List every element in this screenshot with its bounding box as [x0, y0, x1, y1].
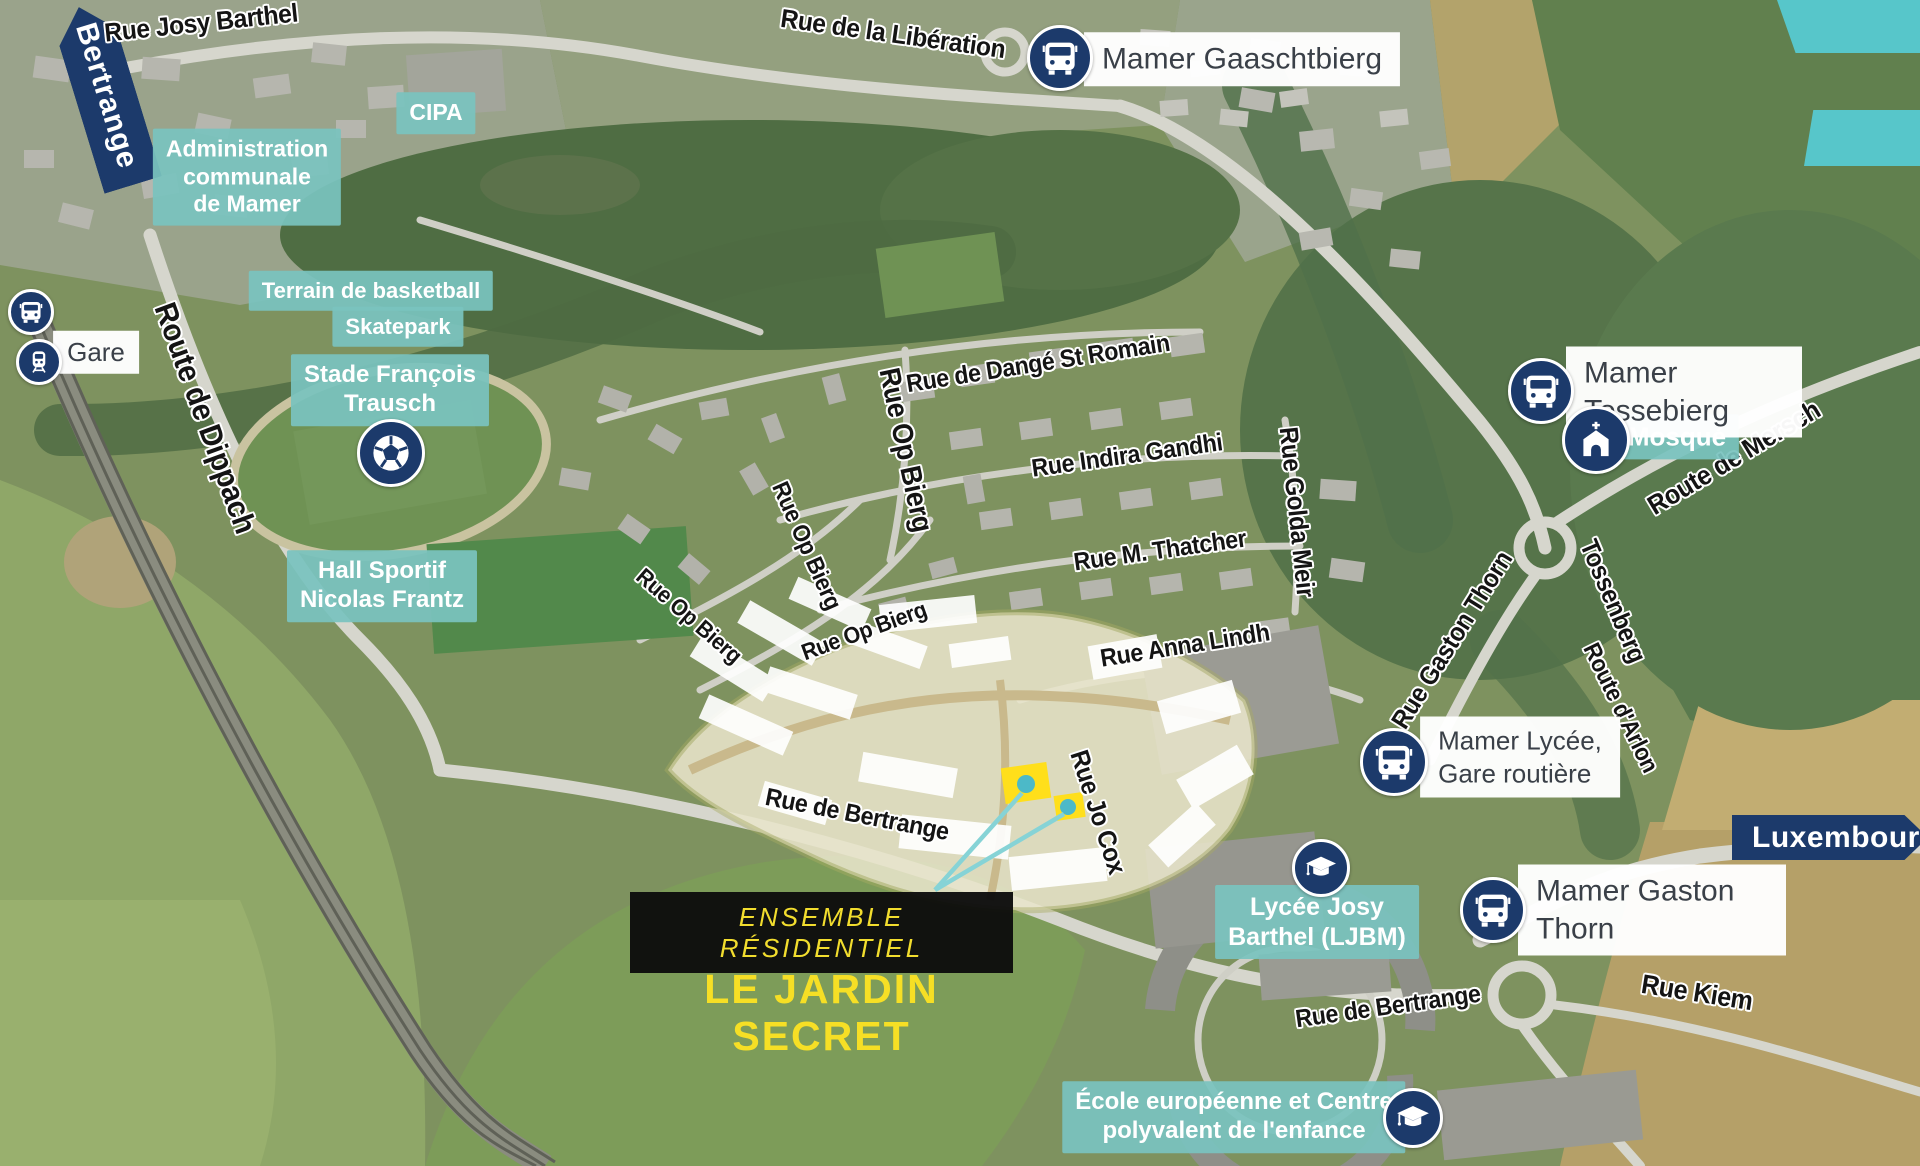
train-icon — [16, 339, 62, 385]
graduation-cap-icon — [1292, 839, 1350, 897]
graduation-cap-icon — [1383, 1088, 1443, 1148]
site-label-subtitle: ENSEMBLE RÉSIDENTIEL — [650, 902, 993, 964]
stop-label-gare: Gare — [53, 331, 139, 374]
bus-icon — [8, 289, 54, 335]
place-label-terrain-basketball: Terrain de basketball — [249, 271, 493, 311]
soccer-ball-icon — [357, 419, 425, 487]
stop-label-mamer-lycee-gare-routiere: Mamer Lycée, Gare routière — [1420, 717, 1620, 798]
place-label-skatepark: Skatepark — [332, 307, 463, 347]
place-label-ecole-europeenne: École européenne et Centre polyvalent de… — [1062, 1081, 1405, 1153]
place-label-stade-francois-trausch: Stade François Trausch — [291, 354, 489, 426]
map-canvas: Bertrange Luxembourg Rue Josy Barthel Ru… — [0, 0, 1920, 1166]
place-label-hall-sportif: Hall Sportif Nicolas Frantz — [287, 550, 477, 622]
stop-label-mamer-gaston-thorn: Mamer Gaston Thorn — [1518, 865, 1786, 956]
corner-flag-bottom — [1804, 110, 1920, 166]
bus-icon — [1360, 728, 1428, 796]
place-label-administration-communale: Administration communale de Mamer — [153, 129, 341, 226]
bus-icon — [1027, 25, 1093, 91]
direction-arrow-luxembourg: Luxembourg — [1732, 815, 1920, 860]
church-icon — [1562, 406, 1630, 474]
highlight-dot-1 — [1017, 775, 1035, 793]
stop-label-mamer-gaaschtbierg: Mamer Gaaschtbierg — [1084, 32, 1400, 86]
corner-flag-top — [1777, 0, 1920, 53]
bus-icon — [1460, 877, 1526, 943]
bus-icon — [1508, 358, 1574, 424]
site-label-title: LE JARDIN SECRET — [650, 966, 993, 1060]
direction-arrow-luxembourg-label: Luxembourg — [1752, 821, 1920, 855]
place-label-cipa: CIPA — [396, 92, 475, 134]
site-label: ENSEMBLE RÉSIDENTIEL LE JARDIN SECRET — [630, 892, 1013, 973]
